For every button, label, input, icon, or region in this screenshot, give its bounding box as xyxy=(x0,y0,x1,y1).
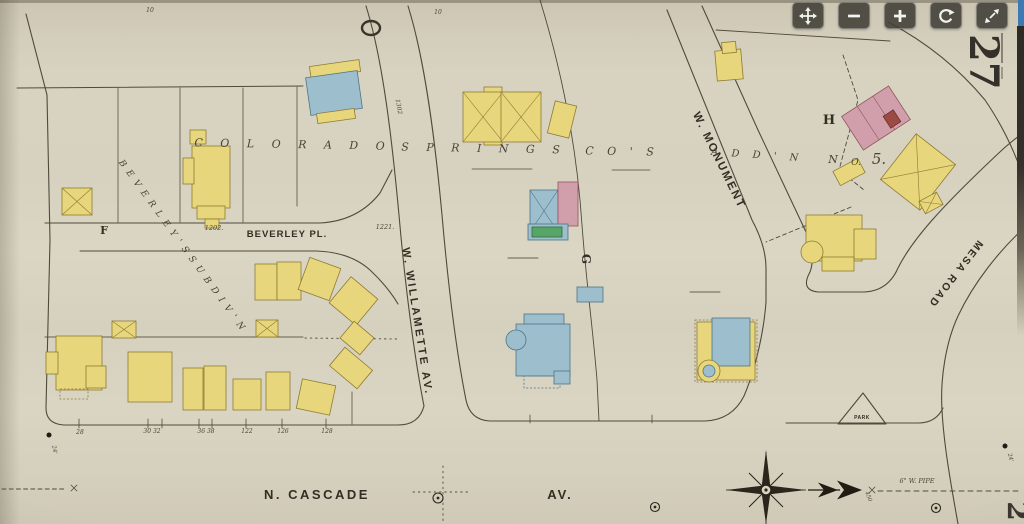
survey-dot xyxy=(47,433,52,438)
map-label: 1302 xyxy=(394,99,404,115)
building-footprint xyxy=(197,206,225,219)
map-label: S P R I N G S xyxy=(401,141,567,157)
map-label: 126 xyxy=(277,428,289,435)
building-footprint xyxy=(60,389,88,399)
building-footprint xyxy=(233,379,261,410)
top-left-block-edge xyxy=(17,86,303,88)
photo-dark-edge xyxy=(1017,26,1024,336)
map-label: F xyxy=(100,224,108,237)
map-label: W. WILLAMETTE AV. xyxy=(399,247,434,397)
map-label: 30 32 xyxy=(143,428,160,435)
plus-icon xyxy=(890,6,910,26)
building-footprint xyxy=(703,365,715,377)
viewer-edge-accent xyxy=(1018,0,1024,26)
building-footprint xyxy=(329,277,378,326)
building-footprint xyxy=(506,330,526,350)
building-footprint xyxy=(86,366,106,388)
map-label: 24' xyxy=(50,444,58,454)
building-footprint xyxy=(801,241,823,263)
building-footprint xyxy=(854,229,876,259)
map-label: AV. xyxy=(547,487,573,502)
map-label: N xyxy=(827,153,838,166)
building-footprint xyxy=(501,92,541,142)
minus-icon xyxy=(844,6,864,26)
survey-dot xyxy=(1003,444,1008,449)
building-footprint xyxy=(842,86,911,150)
map-label: 5. xyxy=(872,150,886,168)
map-label: 24' xyxy=(1006,452,1014,463)
compass-rose xyxy=(726,450,806,524)
map-label: 128 xyxy=(321,428,333,435)
map-label: 1221. xyxy=(376,223,395,231)
map-toolbar xyxy=(792,2,1008,29)
building-footprint xyxy=(277,262,301,300)
map-label: 6" W. PIPE xyxy=(900,477,935,485)
street-lines xyxy=(17,0,1024,524)
building-footprint xyxy=(298,257,341,300)
map-label: 10 xyxy=(146,7,154,14)
building-footprint xyxy=(463,92,503,142)
map-label: MESA ROAD xyxy=(925,238,985,310)
rotate-control[interactable] xyxy=(930,2,962,29)
building-footprint xyxy=(183,158,194,184)
building-footprint xyxy=(822,257,854,271)
map-label: C O ' S xyxy=(585,144,659,158)
map-label: PARK xyxy=(854,415,870,421)
sheet-margin-microtext xyxy=(1001,67,1003,79)
building-footprint xyxy=(112,321,136,338)
map-label: O. xyxy=(851,158,861,168)
building-footprint xyxy=(296,379,335,415)
utility-marker-icon xyxy=(433,493,443,503)
utility-marker-icon xyxy=(932,504,941,513)
building-footprint xyxy=(547,101,576,138)
building-footprint xyxy=(266,372,290,410)
rotate-arrow-icon xyxy=(936,6,956,26)
map-label: BEVERLEY PL. xyxy=(247,229,327,240)
addition-north-boundary xyxy=(716,30,890,41)
building-footprint xyxy=(204,366,226,410)
building-footprint xyxy=(554,371,570,384)
map-label: 36 38 xyxy=(197,428,214,435)
map-label: 122 xyxy=(241,428,253,435)
building-footprint xyxy=(62,188,92,215)
sanborn-map-canvas[interactable]: C O L O R A D OS P R I N G SC O ' SB E V… xyxy=(0,0,1024,524)
map-label: G xyxy=(579,254,593,264)
map-label: W. MONUMENT xyxy=(690,110,747,211)
move-arrows-icon xyxy=(798,6,818,26)
building-footprint xyxy=(329,347,372,389)
map-label: H xyxy=(823,113,835,128)
building-footprint xyxy=(256,320,278,337)
building-footprint xyxy=(255,264,277,300)
pan-control[interactable] xyxy=(792,2,824,29)
building-footprints xyxy=(46,41,956,415)
sanborn-map-viewer: C O L O R A D OS P R I N G SC O ' SB E V… xyxy=(0,0,1024,524)
building-footprint xyxy=(715,49,744,81)
building-footprint xyxy=(128,352,172,402)
map-label: N. CASCADE xyxy=(264,487,370,502)
map-label: 450 xyxy=(863,490,873,503)
building-footprint xyxy=(880,134,955,210)
utility-marker-icon xyxy=(651,503,660,512)
map-symbols xyxy=(47,433,1008,513)
building-footprint xyxy=(183,368,203,410)
map-label: 28 xyxy=(75,429,84,436)
fullscreen-control[interactable] xyxy=(976,2,1008,29)
building-footprint xyxy=(532,227,562,237)
building-footprint xyxy=(577,287,603,302)
map-label: 10 xyxy=(434,9,442,16)
map-label: 1202. xyxy=(205,224,224,232)
building-footprint xyxy=(46,352,58,374)
building-footprint xyxy=(192,146,230,208)
adjacent-sheet-number: 2 xyxy=(1002,496,1024,524)
building-footprint xyxy=(516,324,570,376)
building-footprint xyxy=(558,182,578,226)
zoom-out-control[interactable] xyxy=(838,2,870,29)
sheet-margin-microtext xyxy=(1001,33,1003,63)
expand-arrows-icon xyxy=(982,6,1002,26)
east-arrow xyxy=(808,481,862,500)
zoom-in-control[interactable] xyxy=(884,2,916,29)
company-label-underlines xyxy=(472,169,650,170)
building-footprint xyxy=(722,41,737,53)
building-footprint xyxy=(712,318,750,366)
